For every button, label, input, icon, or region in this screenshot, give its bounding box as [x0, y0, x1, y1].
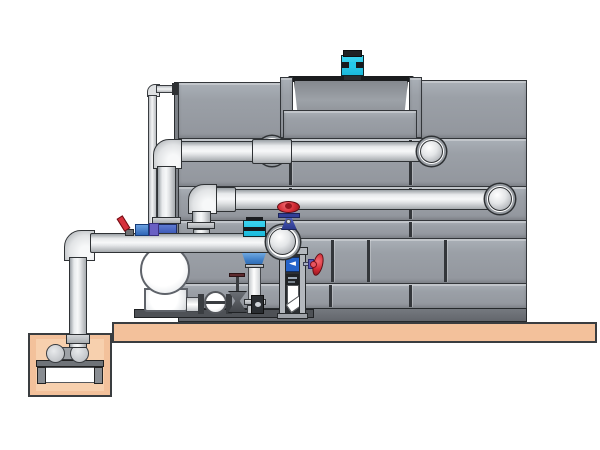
feed-fitting-purple: [149, 223, 159, 236]
makeup-line-wall-flange: [172, 83, 178, 95]
frame-foot: [277, 313, 308, 319]
vpump-motor-band: [244, 227, 265, 231]
row-d-seam-1: [329, 285, 332, 307]
top-valve-stem-dot: [286, 219, 291, 224]
flow-indicator-box: ◄: [285, 257, 300, 272]
lower-pipe-end-dome: [488, 187, 512, 211]
row-d-seam-2: [409, 285, 412, 307]
vpump-column-flange: [245, 264, 264, 268]
frame-label-plate: [286, 274, 299, 285]
frame-post-left: [279, 249, 286, 317]
vpump-motor-cap: [246, 217, 263, 221]
riser-collar: [66, 334, 90, 344]
gate-valve-stem: [236, 277, 239, 293]
frame-post-right: [299, 249, 306, 317]
check-valve-hinge-line: [206, 301, 225, 304]
feed-valve-red-lever: [117, 215, 131, 231]
feed-fitting-blue: [135, 224, 149, 236]
frame-label-dash-2: [288, 281, 295, 283]
upper-pipe-left-elbow: [153, 139, 182, 169]
line-coupling-sight-dot: [255, 302, 261, 307]
top-valve-flange-wings: [278, 213, 300, 218]
upper-pipe-end-dome: [420, 140, 443, 163]
main-pipe-end-dome: [269, 228, 296, 255]
side-valve-hub: [310, 261, 317, 268]
row-c-seam-3: [444, 240, 447, 282]
row-n-seam-2: [409, 222, 412, 237]
upper-wall-pipe: [170, 141, 426, 162]
top-valve-hub: [285, 203, 292, 209]
pump-stand-leg-right: [94, 367, 103, 384]
fan-motor-cap: [343, 50, 362, 57]
upper-pipe-sleeve: [252, 139, 292, 164]
diagram-canvas: ◄: [0, 0, 600, 450]
lower-wall-pipe: [206, 189, 493, 210]
lower-pipe-left-elbow: [188, 184, 217, 214]
sump-pump-body-left: [46, 344, 65, 363]
fan-motor-band-window: [349, 62, 356, 68]
lower-downcomer-flange: [187, 222, 215, 229]
fan-cowl-body: [294, 81, 408, 113]
pump-stand-inner: [45, 367, 95, 383]
pump-stand-plate: [36, 360, 104, 367]
tower-panel-top-right: [420, 80, 527, 139]
frame-label-dash-1: [288, 277, 297, 279]
tower-panel-top-left: [178, 82, 283, 139]
pump-stand-leg-left: [37, 367, 46, 384]
concrete-slab: [112, 322, 597, 343]
line-flange-1: [198, 294, 204, 314]
row-c-seam-2: [367, 240, 370, 282]
row-c-seam-1: [331, 240, 334, 282]
upper-pipe-downcomer: [157, 166, 176, 219]
fan-recess-front-wall: [283, 110, 417, 139]
